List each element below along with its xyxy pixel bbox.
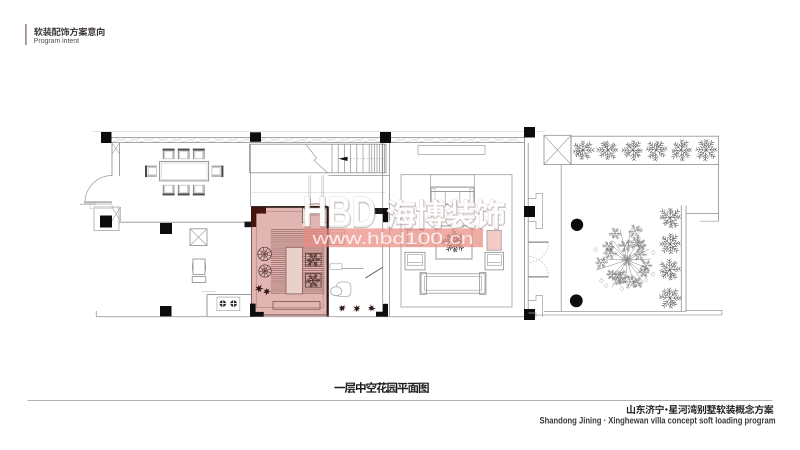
svg-text:Program intent: Program intent bbox=[34, 38, 79, 45]
svg-text:HBD: HBD bbox=[303, 188, 377, 236]
svg-text:Shandong Jining · Xinghewan vi: Shandong Jining · Xinghewan villa concep… bbox=[540, 414, 776, 425]
